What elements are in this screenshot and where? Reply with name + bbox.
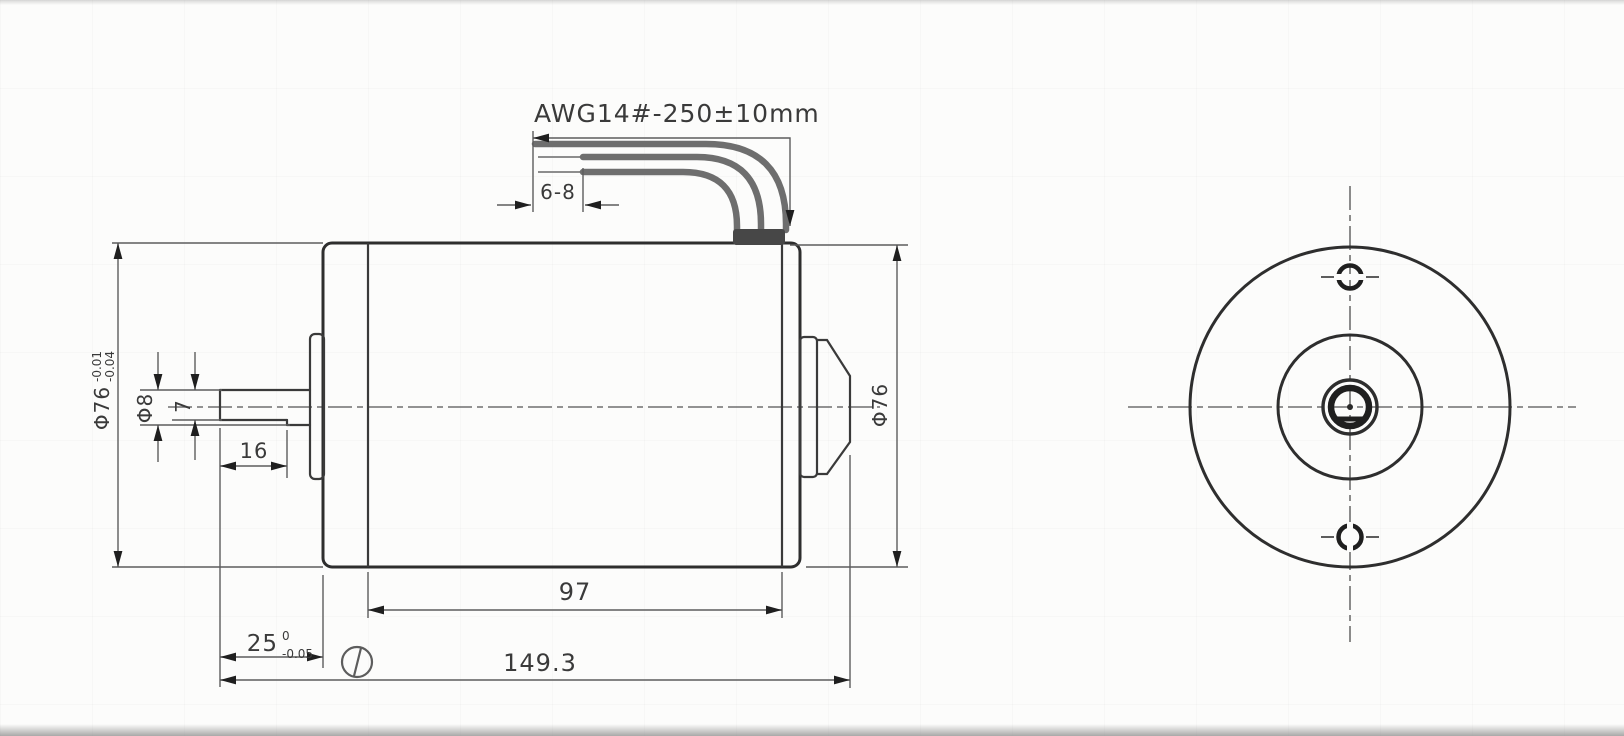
hole-slot xyxy=(1347,522,1353,552)
body-dia-left-tol-lower: -0.04 xyxy=(103,351,117,382)
wire-spec-label: AWG14#-250±10mm xyxy=(534,99,820,128)
shaft-extension-value: 25 xyxy=(247,631,278,657)
body-dia-left-label-group: Φ76 -0.01 -0.04 xyxy=(90,351,117,430)
wire-grommet xyxy=(733,229,785,245)
drawing-canvas: AWG14#-250±10mm 6-8 Φ76 -0.01 -0.04 xyxy=(0,0,1624,736)
datum-symbol-icon xyxy=(342,647,372,677)
motor-technical-drawing: AWG14#-250±10mm 6-8 Φ76 -0.01 -0.04 xyxy=(0,0,1624,736)
shaft-dia-label: Φ8 xyxy=(133,393,157,423)
dim-shaft-extension: 25 0 -0.05 xyxy=(220,575,323,668)
flat-length-label: 16 xyxy=(240,439,269,463)
dim-wire-length: AWG14#-250±10mm xyxy=(533,99,820,226)
body-dia-left-value: Φ76 xyxy=(90,386,114,430)
shaft-extension-tol-upper: 0 xyxy=(282,629,290,643)
body-dia-left-tol-upper: -0.01 xyxy=(90,351,104,382)
dim-flat-width: 7 xyxy=(171,352,222,460)
wire-3 xyxy=(583,172,737,231)
mounting-hole-bottom xyxy=(1321,522,1379,552)
flat-width-label: 7 xyxy=(171,399,195,413)
scan-edge-bottom xyxy=(0,724,1624,736)
datum-slash xyxy=(354,648,361,676)
dim-body-length: 97 xyxy=(368,572,782,618)
shaft-extension-tol-lower: -0.05 xyxy=(282,647,313,661)
side-view: AWG14#-250±10mm 6-8 Φ76 -0.01 -0.04 xyxy=(90,99,908,688)
shaft-center-point xyxy=(1347,404,1353,410)
dim-overall-length: 149.3 xyxy=(220,455,850,688)
dim-body-dia-left: Φ76 -0.01 -0.04 xyxy=(90,243,323,567)
body-dia-right-label: Φ76 xyxy=(868,383,892,427)
motor-body-outline xyxy=(323,243,800,567)
hole-slot xyxy=(1335,274,1365,280)
end-view xyxy=(1128,186,1576,642)
body-length-label: 97 xyxy=(559,578,592,606)
overall-length-label: 149.3 xyxy=(503,649,577,677)
strip-length-label: 6-8 xyxy=(540,180,576,204)
